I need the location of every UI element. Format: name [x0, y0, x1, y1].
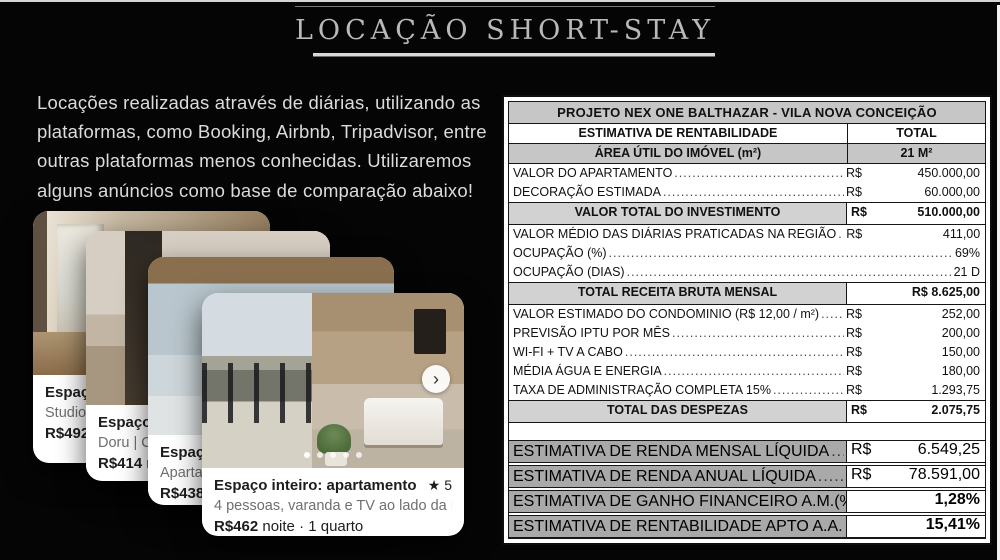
frame-top-edge [0, 0, 1000, 2]
page-title: LOCAÇÃO SHORT-STAY [295, 15, 715, 46]
photo-balcony-view [202, 293, 312, 468]
listing-subtitle: 4 pessoas, varanda e TV ao lado da Faria… [214, 498, 452, 514]
dot-leader [838, 225, 844, 244]
carousel-dots [202, 452, 464, 458]
table-row: VALOR ESTIMADO DO CONDOMINIO (R$ 12,00 /… [509, 305, 985, 324]
plant-shape [317, 424, 351, 454]
table-result-row: ESTIMATIVA DE RENTABILIDADE APTO A.A. (%… [508, 515, 986, 538]
table-total-row: VALOR TOTAL DO INVESTIMENTO R$510.000,00 [509, 202, 985, 225]
listing-price: R$462 noite · 1 quarto [214, 518, 452, 535]
carousel-dot[interactable] [356, 452, 362, 458]
col-header-label: ESTIMATIVA DE RENTABILIDADE [509, 124, 847, 143]
table-header-row: ESTIMATIVA DE RENTABILIDADE TOTAL [509, 124, 985, 144]
dot-leader [773, 381, 844, 400]
table-row: PREVISÃO IPTU POR MÊSR$200,00 [509, 324, 985, 343]
table-title: PROJETO NEX ONE BALTHAZAR - VILA NOVA CO… [557, 103, 937, 122]
listing-text: Espaço inteiro: apartamento em Sã... ★ 5… [202, 468, 464, 535]
listing-title: Espaço inteiro: apartamento em Sã... [214, 477, 418, 494]
listing-photo: › [202, 293, 464, 468]
dot-leader [831, 443, 844, 461]
table-row: OCUPAÇÃO (DIAS)21 D [509, 263, 985, 282]
rent-table-panel: PROJETO NEX ONE BALTHAZAR - VILA NOVA CO… [502, 95, 992, 545]
table-result-row: ESTIMATIVA DE GANHO FINANCEIRO A.M.(%) 1… [508, 490, 986, 513]
table-row: MÉDIA ÁGUA E ENERGIAR$180,00 [509, 362, 985, 381]
carousel-dot[interactable] [317, 452, 323, 458]
area-label: ÁREA ÚTIL DO IMÓVEL (m²) [509, 144, 847, 163]
table-row: WI-FI + TV A CABOR$150,00 [509, 343, 985, 362]
carousel-next-button[interactable]: › [422, 365, 450, 393]
dot-leader [672, 324, 844, 343]
table-title-row: PROJETO NEX ONE BALTHAZAR - VILA NOVA CO… [509, 102, 985, 124]
dot-leader [821, 305, 844, 324]
tv-shape [414, 309, 445, 355]
listing-rating: ★ 5 [428, 477, 452, 494]
slide: LOCAÇÃO SHORT-STAY Locações realizadas a… [0, 0, 1000, 560]
table-result-row: ESTIMATIVA DE RENDA ANUAL LÍQUIDA R$78.5… [508, 465, 986, 488]
listing-title: Espaço [98, 414, 151, 431]
rent-table: PROJETO NEX ONE BALTHAZAR - VILA NOVA CO… [508, 101, 986, 539]
dot-leader [674, 164, 844, 183]
chevron-right-icon: › [433, 370, 439, 388]
dot-leader [664, 362, 844, 381]
table-row: VALOR MÉDIO DAS DIÁRIAS PRATICADAS NA RE… [509, 225, 985, 244]
table-spacer-row [509, 423, 985, 438]
table-row: DECORAÇÃO ESTIMADAR$60.000,00 [509, 183, 985, 202]
table-total-row: TOTAL RECEITA BRUTA MENSAL R$ 8.625,00 [509, 282, 985, 305]
carousel-dot[interactable] [304, 452, 310, 458]
table-total-row: TOTAL DAS DESPEZAS R$2.075,75 [509, 400, 985, 423]
title-top-rule [295, 6, 715, 7]
table-row: VALOR DO APARTAMENTOR$450.000,00 [509, 164, 985, 183]
carousel-dot[interactable] [330, 452, 336, 458]
dot-leader [663, 183, 844, 202]
area-value: 21 M² [847, 144, 985, 163]
star-icon: ★ [428, 477, 441, 493]
dot-leader [627, 263, 952, 282]
col-header-total: TOTAL [847, 124, 985, 143]
table-row: TAXA DE ADMINISTRAÇÃO COMPLETA 15%R$1.29… [509, 381, 985, 400]
dot-leader [609, 244, 953, 263]
dot-leader [625, 343, 844, 362]
carousel-dot[interactable] [343, 452, 349, 458]
table-row: OCUPAÇÃO (%)69% [509, 244, 985, 263]
title-underline-rule [313, 53, 715, 57]
table-area-row: ÁREA ÚTIL DO IMÓVEL (m²) 21 M² [509, 144, 985, 164]
table-result-row: ESTIMATIVA DE RENDA MENSAL LÍQUIDA R$6.5… [508, 440, 986, 463]
listing-card[interactable]: › Espaço inteiro: apartamento em Sã... ★… [202, 293, 464, 536]
title-block: LOCAÇÃO SHORT-STAY [295, 6, 715, 57]
dot-leader [818, 468, 844, 486]
intro-text: Locações realizadas através de diárias, … [37, 88, 507, 205]
bed-shape [364, 398, 443, 445]
